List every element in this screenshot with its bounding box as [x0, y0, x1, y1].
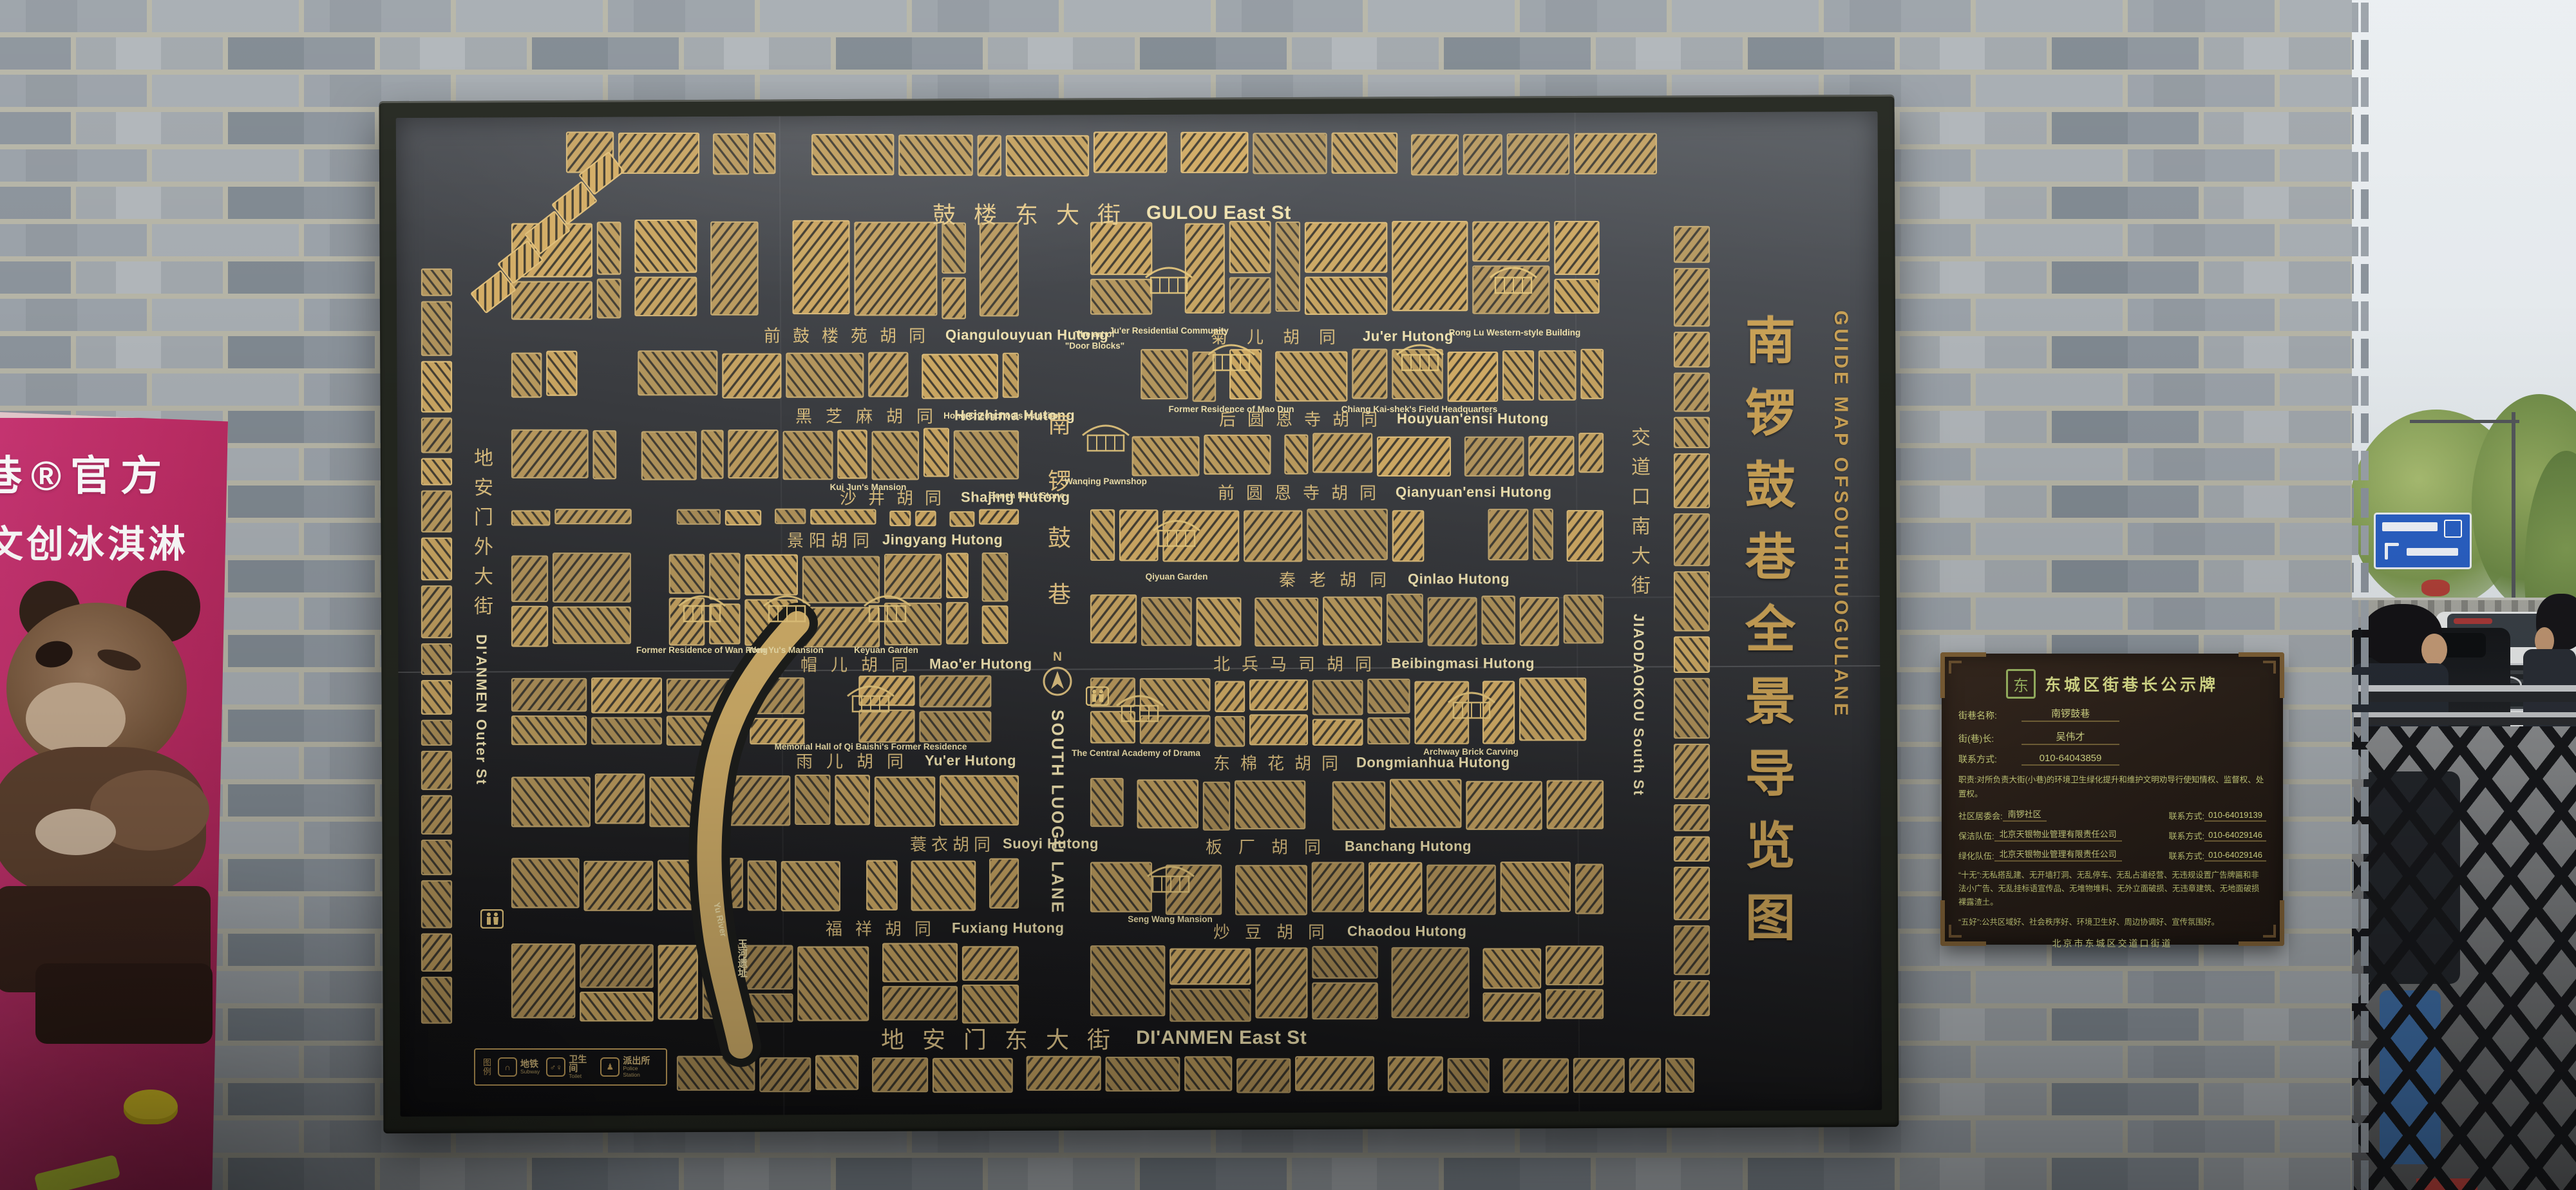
- plaque-duty-text: 职责:对所负责大街(小巷)的环境卫生绿化提升和维护文明劝导行使知情权、监督权、处…: [1958, 773, 2266, 802]
- street-label-qiangulouyuan-hutong: 前鼓楼苑胡同Qiangulouyuan Hutong: [764, 323, 1108, 347]
- plaque-phone-label: 联系方式:: [2169, 849, 2205, 862]
- street-label-qinlao-hutong: 秦老胡同Qinlao Hutong: [1279, 567, 1510, 591]
- poi-label: Hong Chengchou's Mansion: [943, 410, 1061, 422]
- street-label-ju-er-hutong: 菊儿胡同Ju'er Hutong: [1211, 325, 1454, 348]
- street-label-zh: 南锣鼓巷: [1041, 412, 1074, 639]
- plaque-org-label: 保洁队伍:: [1958, 829, 1994, 842]
- street-label-en: Banchang Hutong: [1345, 838, 1472, 855]
- plaque-org-value: 北京天银物业管理有限责任公司: [1994, 827, 2122, 842]
- legend-item-zh: 派出所: [623, 1056, 654, 1065]
- street-label-en: DI'ANMEN Outer St: [473, 634, 489, 786]
- poi-label: Wen Yu's Mansion: [748, 645, 824, 656]
- street-label-banchang-hutong: 板厂胡同Banchang Hutong: [1206, 835, 1472, 858]
- street-label-chaodou-hutong: 炒豆胡同Chaodou Hutong: [1213, 920, 1466, 943]
- legend-item-police-station: ♟派出所Police Station: [600, 1056, 654, 1078]
- legend-item-text: 卫生间Toilet: [569, 1055, 594, 1079]
- plaque-phone-label: 联系方式:: [2169, 829, 2205, 842]
- poi-label: Archway Brick Carving: [1423, 746, 1519, 758]
- wc-icon: ♂♀: [546, 1057, 565, 1077]
- street-label-en: Jingyang Hutong: [882, 531, 1003, 548]
- street-label-qianyuan-ensi-hutong: 前圆恩寺胡同Qianyuan'ensi Hutong: [1218, 480, 1552, 504]
- plaque-org-row: 保洁队伍:北京天银物业管理有限责任公司联系方式:010-64029146: [1958, 827, 2266, 842]
- street-label-fuxiang-hutong: 福祥胡同Fuxiang Hutong: [826, 916, 1064, 940]
- plaque-org-row: 社区居委会:南锣社区联系方式:010-64019139: [1958, 807, 2266, 822]
- street-label-zh: 北兵马司胡同: [1213, 652, 1383, 675]
- plaque-field-value: 南锣鼓巷: [2022, 706, 2119, 722]
- street-label-en: DI'ANMEN East St: [1136, 1027, 1307, 1049]
- district-seal-icon: 东: [2006, 669, 2036, 699]
- legend-item-text: 派出所Police Station: [623, 1056, 654, 1078]
- plaque-field-value: 010-64043859: [2022, 753, 2119, 766]
- street-label-di-anmen-outer-st: 地安门外大街DI'ANMEN Outer St: [467, 448, 495, 786]
- plaque-org-value: 南锣社区: [2003, 807, 2047, 822]
- poi-label: Kui Jun's Mansion: [830, 482, 907, 493]
- legend-item-zh: 地铁: [520, 1059, 540, 1068]
- street-label-zh: 交道口南大街: [1624, 427, 1653, 605]
- street-label-zh: 前鼓楼苑胡同: [764, 323, 938, 347]
- map-labels: 南锣鼓巷全景导览图 GUIDE MAP OFSOUTHIUOGULANE 图例 …: [0, 0, 2576, 1190]
- street-label-south-luogu-lane: 南锣鼓巷NSOUTH LUOGU LANE: [1039, 412, 1075, 914]
- plaque-field: 街巷名称:南锣鼓巷: [1958, 706, 2266, 722]
- street-label-zh: 蓑衣胡同: [910, 832, 995, 856]
- plaque-field-value: 吴伟才: [2022, 730, 2119, 745]
- street-label-en: Chaodou Hutong: [1347, 923, 1466, 940]
- poi-label: Chiang Kai-shek's Field Headquarters: [1341, 404, 1498, 415]
- plaque-corner-ornament: [2239, 900, 2284, 946]
- street-label-zh: 秦老胡同: [1279, 567, 1400, 591]
- poi-label: The Central Academy of Drama: [1072, 748, 1200, 759]
- street-label-zh: 地安门东大街: [881, 1021, 1128, 1055]
- street-label-di-anmen-east-st: 地安门东大街DI'ANMEN East St: [881, 1021, 1307, 1055]
- plaque-phone-value: 010-64029146: [2204, 850, 2266, 862]
- street-label-en: Qinlao Hutong: [1408, 571, 1510, 587]
- street-label-zh: 福祥胡同: [826, 916, 944, 940]
- legend-item-text: 地铁Subway: [520, 1059, 540, 1075]
- street-label-zh: 鼓楼东大街: [933, 196, 1139, 230]
- street-label-zh: 菊儿胡同: [1211, 325, 1355, 348]
- street-label-beibingmasi-hutong: 北兵马司胡同Beibingmasi Hutong: [1213, 652, 1535, 675]
- shield-icon: ♟: [600, 1057, 620, 1077]
- street-label-en: SOUTH LUOGU LANE: [1048, 710, 1068, 914]
- plaque-field-label: 街(巷)长:: [1958, 732, 2022, 745]
- poi-label: Yu River: [711, 902, 729, 938]
- plaque-corner-ornament: [1940, 652, 1986, 698]
- plaque-wuhao-text: “五好”:公共区域好、社会秩序好、环境卫生好、周边协调好、宣传氛围好。: [1958, 916, 2266, 929]
- photo-scene: 巷®官方 文创冰淇淋 南锣鼓巷全景导览图 GUIDE MAP OFSOUTHIU…: [0, 0, 2576, 1190]
- poi-label: Ju'er Residential Community: [1109, 325, 1229, 337]
- poi-label: Qiyuan Garden: [1146, 571, 1208, 583]
- street-label-zh: 炒豆胡同: [1213, 920, 1340, 943]
- street-label-en: Ju'er Hutong: [1363, 328, 1454, 345]
- legend-item-en: Police Station: [623, 1065, 654, 1078]
- poi-label: Bench Mark Stone: [989, 490, 1065, 502]
- street-label-jiaodaokou-south-st: 交道口南大街JIAODAOKOU South St: [1624, 427, 1653, 797]
- arch-icon: ∩: [498, 1057, 517, 1077]
- plaque-org-label: 绿化队伍:: [1958, 849, 1994, 862]
- map-legend: 图例 ∩地铁Subway♂♀卫生间Toilet♟派出所Police Statio…: [474, 1048, 667, 1086]
- street-label-en: GULOU East St: [1146, 202, 1291, 224]
- plaque-corner-ornament: [2239, 652, 2284, 698]
- poi-label: Former Residence of Mao Dun: [1168, 404, 1294, 415]
- street-label-zh: 前圆恩寺胡同: [1218, 480, 1388, 504]
- plaque-field-label: 街巷名称:: [1958, 709, 2022, 722]
- svg-text:N: N: [1053, 650, 1062, 664]
- street-label-gulou-east-st: 鼓楼东大街GULOU East St: [933, 196, 1291, 230]
- legend-item-en: Subway: [520, 1068, 540, 1075]
- plaque-org-label: 社区居委会:: [1958, 809, 2003, 822]
- plaque-footer: 北京市东城区交道口街道: [1958, 937, 2266, 950]
- street-label-en: Yu'er Hutong: [925, 752, 1016, 769]
- plaque-phone-value: 010-64029146: [2204, 830, 2266, 842]
- map-title-zh: 南锣鼓巷全景导览图: [1730, 314, 1802, 963]
- poi-label: Rong Lu Western-style Building: [1449, 327, 1581, 339]
- plaque-org-row: 绿化队伍:北京天银物业管理有限责任公司联系方式:010-64029146: [1958, 847, 2266, 862]
- plaque-shiwu-text: “十无”:无私搭乱建、无开墙打洞、无乱停车、无乱占道经营、无违规设置广告牌匾和非…: [1958, 869, 2266, 909]
- plaque-phone-value: 010-64019139: [2204, 810, 2266, 822]
- poi-label: Memorial Hall of Qi Baishi's Former Resi…: [775, 741, 967, 753]
- poi-label: Seng Wang Mansion: [1128, 914, 1213, 925]
- poi-label: Wanqing Pawnshop: [1065, 476, 1147, 487]
- street-label-zh: 东棉花胡同: [1213, 751, 1349, 775]
- legend-title: 图例: [480, 1058, 493, 1076]
- legend-item-subway: ∩地铁Subway: [498, 1057, 540, 1077]
- plaque-corner-ornament: [1940, 900, 1986, 946]
- plaque-field-label: 联系方式:: [1958, 753, 2022, 766]
- legend-item-zh: 卫生间: [569, 1055, 594, 1073]
- plaque-title: 东城区街巷长公示牌: [2045, 672, 2219, 695]
- street-label-en: Mao'er Hutong: [929, 656, 1032, 672]
- legend-item-toilet: ♂♀卫生间Toilet: [546, 1055, 594, 1079]
- street-label-en: Beibingmasi Hutong: [1391, 655, 1535, 672]
- street-label-en: JIAODAOKOU South St: [1630, 614, 1647, 797]
- street-chief-notice-plaque: 东 东城区街巷长公示牌 街巷名称:南锣鼓巷街(巷)长:吴伟才联系方式:010-6…: [1942, 654, 2283, 945]
- poi-label: 玉河遗址: [735, 939, 748, 977]
- map-title-en: GUIDE MAP OFSOUTHIUOGULANE: [1830, 310, 1851, 719]
- plaque-org-value: 北京天银物业管理有限责任公司: [1994, 847, 2122, 862]
- street-label-en: Qianyuan'ensi Hutong: [1396, 484, 1552, 500]
- plaque-phone-label: 联系方式:: [2169, 809, 2205, 822]
- plaque-field: 街(巷)长:吴伟才: [1958, 730, 2266, 745]
- compass-north-icon: N: [1039, 648, 1075, 702]
- street-label-zh: 板厂胡同: [1206, 835, 1337, 858]
- street-label-en: Fuxiang Hutong: [952, 920, 1064, 936]
- legend-item-en: Toilet: [569, 1073, 594, 1079]
- plaque-field: 联系方式:010-64043859: [1958, 753, 2266, 766]
- street-label-zh: 黑芝麻胡同: [795, 404, 947, 428]
- street-label-jingyang-hutong: 景阳胡同Jingyang Hutong: [787, 528, 1003, 552]
- street-label-zh: 景阳胡同: [787, 528, 875, 552]
- poi-label: Keyuan Garden: [854, 645, 918, 656]
- street-label-zh: 地安门外大街: [467, 448, 495, 625]
